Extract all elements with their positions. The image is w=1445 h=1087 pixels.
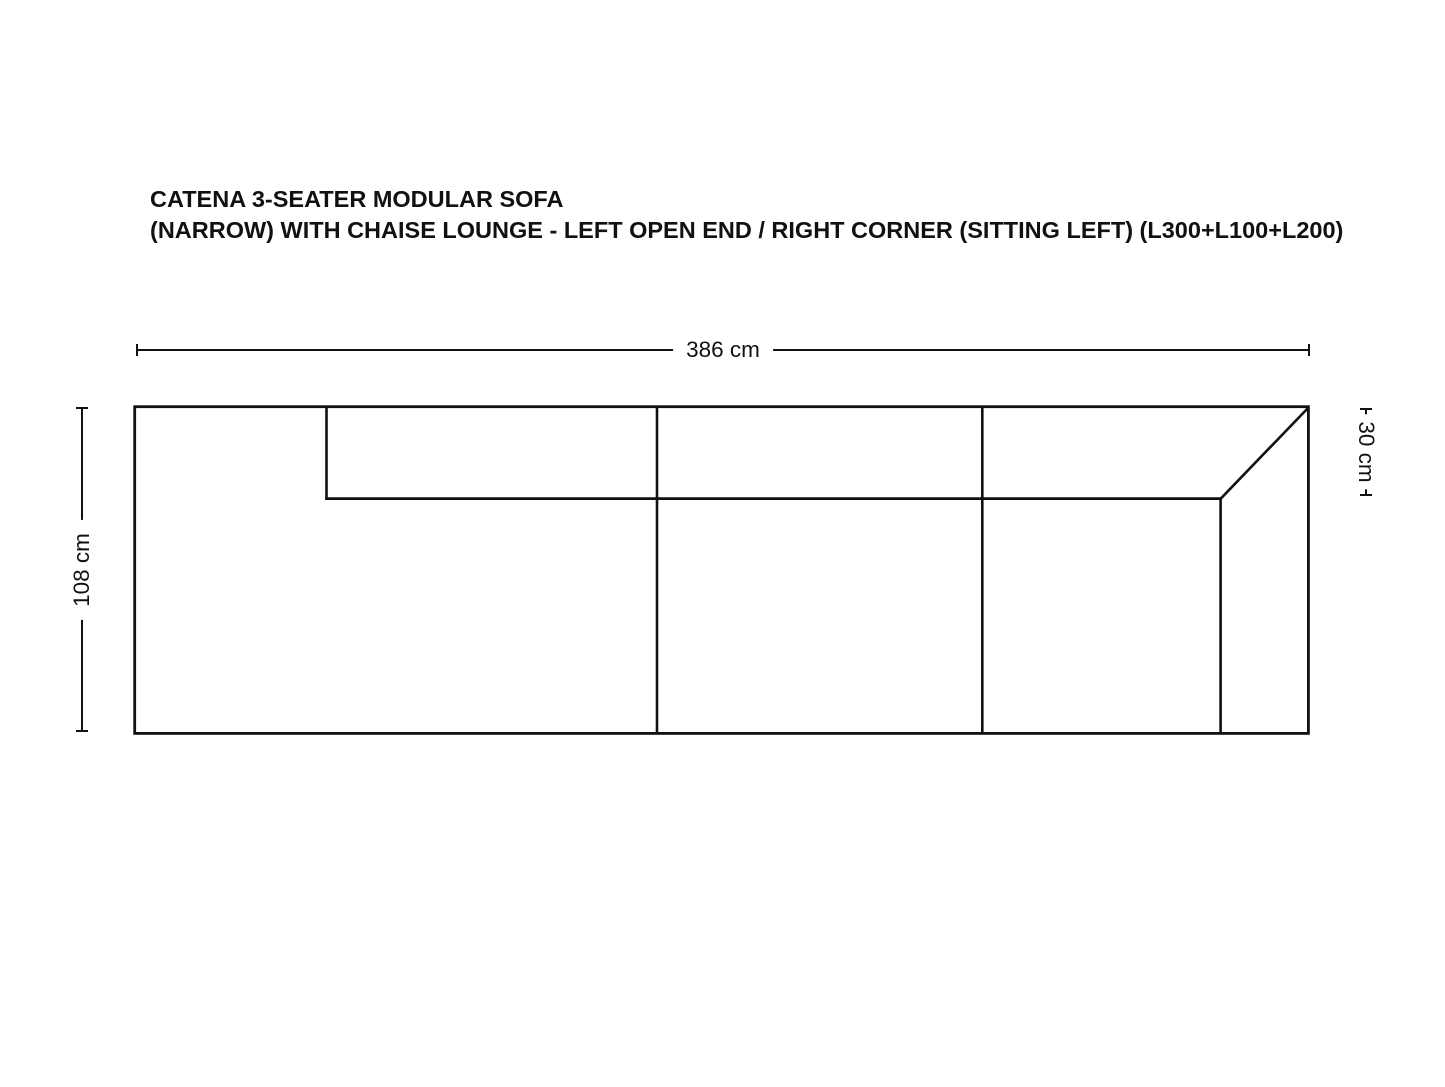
sofa-outline xyxy=(135,407,1309,734)
corner-miter-line xyxy=(1220,408,1309,500)
sofa-schematic xyxy=(0,0,1445,1087)
